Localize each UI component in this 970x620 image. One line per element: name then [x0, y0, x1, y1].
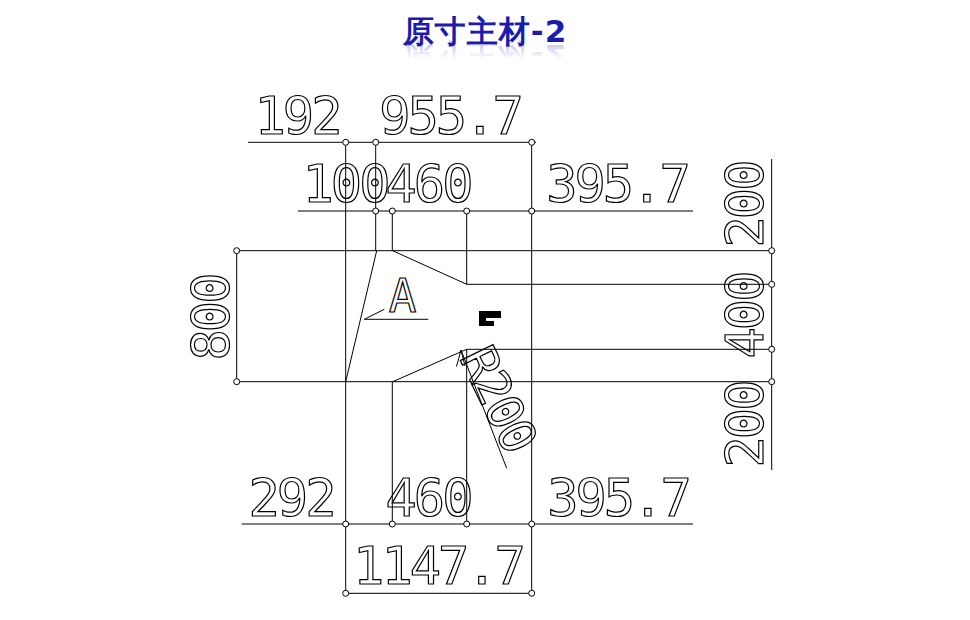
dim-right-200-top: 200 — [719, 163, 771, 248]
dim-total-1147-7: 1147.7 — [353, 540, 523, 592]
cad-drawing-page: 原寸主材-2 原寸主材-2 — [0, 0, 970, 620]
dim-bottom-460: 460 — [386, 472, 471, 524]
dim-top-395-7: 395.7 — [546, 158, 688, 210]
dim-left-800: 800 — [185, 276, 237, 361]
dim-top-100: 100 — [303, 158, 388, 210]
dim-top-192: 192 — [255, 90, 340, 142]
dim-top-955-7: 955.7 — [379, 90, 521, 142]
solid-mark — [479, 311, 501, 326]
dim-bottom-395-7: 395.7 — [547, 472, 689, 524]
dim-right-400: 400 — [719, 274, 771, 359]
dim-bottom-292: 292 — [249, 472, 334, 524]
dim-right-200-bottom: 200 — [719, 383, 771, 468]
dim-top-460: 460 — [386, 158, 471, 210]
detail-label-a: A — [389, 273, 414, 319]
